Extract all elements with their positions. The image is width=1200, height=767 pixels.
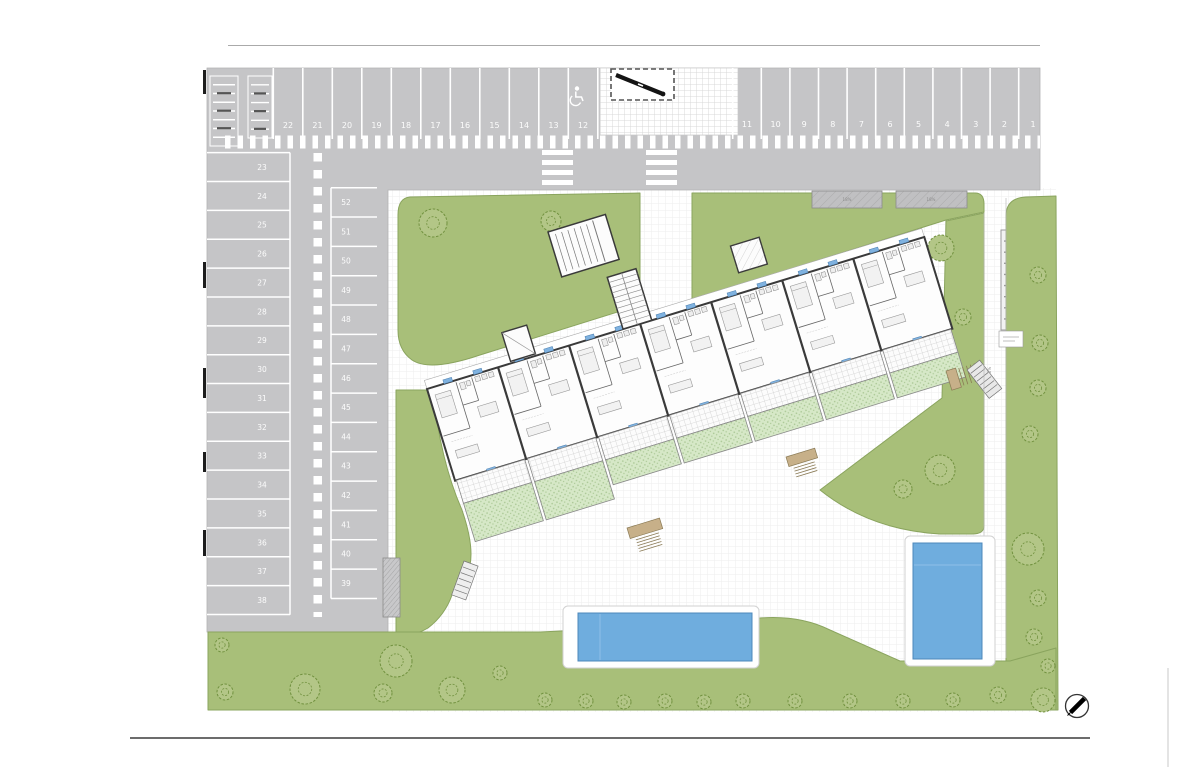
bicycle-glyph — [217, 110, 231, 112]
parking-space-number: 2 — [1002, 120, 1007, 129]
tree-canopy — [697, 695, 711, 709]
tree-canopy — [374, 684, 392, 702]
tree-canopy — [215, 638, 229, 652]
parking-space-number: 19 — [371, 121, 381, 130]
tree-icon — [928, 235, 954, 261]
tree-canopy — [290, 674, 320, 704]
tree-canopy — [1012, 533, 1044, 565]
tree-canopy — [217, 684, 233, 700]
tree-canopy — [1030, 380, 1046, 396]
kitchen-counter — [552, 352, 558, 358]
tree-icon — [290, 674, 320, 704]
tree-icon — [896, 694, 910, 708]
gate-pivot — [661, 92, 666, 97]
tree-icon — [1030, 380, 1046, 396]
parking-space-number: 45 — [341, 403, 351, 412]
parking-space-number: 18 — [401, 121, 411, 130]
tree-canopy — [955, 309, 971, 325]
tree-icon — [493, 666, 507, 680]
kitchen-counter — [559, 350, 565, 356]
tree-icon — [215, 638, 229, 652]
tree-canopy — [990, 687, 1006, 703]
parking-space-number: 21 — [312, 121, 322, 130]
parking-space-number: 41 — [341, 520, 351, 529]
kitchen-counter — [481, 374, 487, 380]
tree-icon — [843, 694, 857, 708]
parking-space-number: 10 — [771, 120, 781, 129]
tree-icon — [579, 694, 593, 708]
tree-canopy — [928, 235, 954, 261]
tree-canopy — [419, 209, 447, 237]
parking-space-number: 36 — [257, 538, 267, 547]
walkway-dash-strip — [225, 136, 1040, 149]
kitchen-counter — [901, 245, 907, 251]
tree-canopy — [617, 695, 631, 709]
tree-icon — [1030, 590, 1046, 606]
tree-icon — [946, 693, 960, 707]
parking-space-number: 51 — [341, 227, 351, 236]
parking-space-number: 13 — [548, 121, 558, 130]
parking-space-number: 3 — [973, 120, 978, 129]
tree-icon — [541, 211, 561, 231]
parking-space-number: 32 — [257, 423, 267, 432]
tree-icon — [374, 684, 392, 702]
parking-space-number: 23 — [257, 163, 267, 172]
small-pool — [913, 543, 982, 659]
tree-icon — [1041, 659, 1055, 673]
tree-canopy — [896, 694, 910, 708]
site-plan-drawing: 2221201918171615141312 1110987654321 232… — [0, 0, 1200, 767]
parking-space-number: 5 — [916, 120, 921, 129]
tree-icon — [538, 693, 552, 707]
tree-icon — [1012, 533, 1044, 565]
tree-canopy — [538, 693, 552, 707]
kitchen-counter — [488, 372, 494, 378]
kitchen-counter — [630, 328, 636, 334]
parking-space-number: 20 — [342, 121, 352, 130]
bicycle-glyph — [254, 110, 266, 112]
parking-space-number: 47 — [341, 345, 351, 354]
parking-space-number: 22 — [283, 121, 293, 130]
tree-icon — [658, 694, 672, 708]
parking-space-number: 38 — [257, 596, 267, 605]
rack-label-box — [999, 331, 1023, 347]
zebra-crossing-east — [646, 147, 677, 186]
parking-space-number: 27 — [257, 278, 267, 287]
aisle-dashed-centerline — [314, 153, 323, 617]
parking-space-number: 28 — [257, 307, 267, 316]
tree-canopy — [894, 480, 912, 498]
tree-icon — [1031, 688, 1055, 712]
site-entrance-zone — [600, 68, 738, 135]
parking-space-number: 25 — [257, 221, 267, 230]
parking-space-number: 40 — [341, 550, 351, 559]
parking-space-number: 30 — [257, 365, 267, 374]
parking-space-number: 33 — [257, 452, 267, 461]
parking-space-number: 26 — [257, 250, 267, 259]
parking-space-number: 46 — [341, 374, 351, 383]
kitchen-counter — [546, 354, 552, 360]
parking-space-number: 44 — [341, 432, 351, 441]
parking-space-number: 1 — [1030, 120, 1035, 129]
ramp-grade-label-2: 18% — [927, 197, 936, 202]
ramp-southwest-hatch — [383, 558, 400, 617]
parking-space-number: 43 — [341, 462, 351, 471]
bicycle-glyph — [254, 128, 266, 130]
kitchen-counter — [701, 306, 707, 312]
kitchen-counter — [475, 376, 481, 382]
parking-space-number: 52 — [341, 198, 351, 207]
tree-canopy — [925, 455, 955, 485]
parking-space-number: 9 — [802, 120, 807, 129]
parking-space-number: 4 — [945, 120, 950, 129]
kitchen-counter — [765, 287, 771, 293]
parking-space-number: 39 — [341, 579, 351, 588]
kitchen-counter — [617, 332, 623, 338]
tree-icon — [1030, 267, 1046, 283]
parking-space-number: 34 — [257, 481, 267, 490]
bicycle-glyph — [217, 127, 231, 129]
tree-icon — [955, 309, 971, 325]
tree-canopy — [1031, 688, 1055, 712]
tree-icon — [1022, 426, 1038, 442]
tree-icon — [788, 694, 802, 708]
tree-icon — [894, 480, 912, 498]
kitchen-counter — [772, 285, 778, 291]
parking-space-number: 15 — [489, 121, 499, 130]
tree-icon — [1032, 335, 1048, 351]
kitchen-counter — [914, 241, 920, 247]
north-compass-icon — [1066, 695, 1089, 718]
tree-canopy — [439, 677, 465, 703]
zebra-crossing-west — [542, 147, 573, 186]
parking-space-number: 12 — [578, 121, 588, 130]
tree-canopy — [736, 694, 750, 708]
tree-icon — [419, 209, 447, 237]
bicycle-glyph — [254, 92, 266, 94]
tree-canopy — [843, 694, 857, 708]
tree-canopy — [1026, 629, 1042, 645]
tree-canopy — [1041, 659, 1055, 673]
main-pool — [578, 613, 752, 661]
tree-canopy — [1032, 335, 1048, 351]
west-wall-ticks — [203, 70, 206, 556]
kitchen-counter — [837, 265, 843, 271]
parking-space-number: 16 — [460, 121, 470, 130]
parking-space-number: 29 — [257, 336, 267, 345]
parking-space-number: 17 — [430, 121, 440, 130]
tree-canopy — [788, 694, 802, 708]
parking-space-number: 6 — [887, 120, 892, 129]
kitchen-counter — [688, 310, 694, 316]
tree-canopy — [493, 666, 507, 680]
parking-space-number: 48 — [341, 315, 351, 324]
parking-space-number: 42 — [341, 491, 351, 500]
tree-canopy — [1022, 426, 1038, 442]
tree-icon — [439, 677, 465, 703]
parking-space-number: 31 — [257, 394, 267, 403]
site-plan-canvas: 2221201918171615141312 1110987654321 232… — [0, 0, 1200, 767]
kitchen-counter — [830, 267, 836, 273]
tree-icon — [990, 687, 1006, 703]
parking-space-number: 35 — [257, 509, 267, 518]
tree-icon — [736, 694, 750, 708]
kitchen-counter — [843, 263, 849, 269]
kitchen-counter — [908, 243, 914, 249]
tree-canopy — [1030, 267, 1046, 283]
parking-space-number: 24 — [257, 192, 267, 201]
tree-canopy — [1030, 590, 1046, 606]
kitchen-counter — [759, 289, 765, 295]
tree-canopy — [946, 693, 960, 707]
parking-space-number: 14 — [519, 121, 529, 130]
parking-space-number: 7 — [859, 120, 864, 129]
kitchen-counter — [623, 330, 629, 336]
parking-space-number: 8 — [830, 120, 835, 129]
tree-canopy — [541, 211, 561, 231]
parking-space-number: 49 — [341, 286, 351, 295]
tree-icon — [925, 455, 955, 485]
tree-icon — [1026, 629, 1042, 645]
tree-canopy — [579, 694, 593, 708]
tree-icon — [617, 695, 631, 709]
parking-space-number: 37 — [257, 567, 267, 576]
path-grade-label: 6% — [987, 367, 992, 374]
parking-space-number: 50 — [341, 257, 351, 266]
tree-icon — [697, 695, 711, 709]
ramp-grade-label-1: 18% — [843, 197, 852, 202]
kitchen-counter — [694, 308, 700, 314]
parking-space-number: 11 — [742, 120, 752, 129]
bicycle-glyph — [217, 92, 231, 94]
tree-canopy — [658, 694, 672, 708]
tree-icon — [217, 684, 233, 700]
tree-canopy — [380, 645, 412, 677]
tree-icon — [380, 645, 412, 677]
